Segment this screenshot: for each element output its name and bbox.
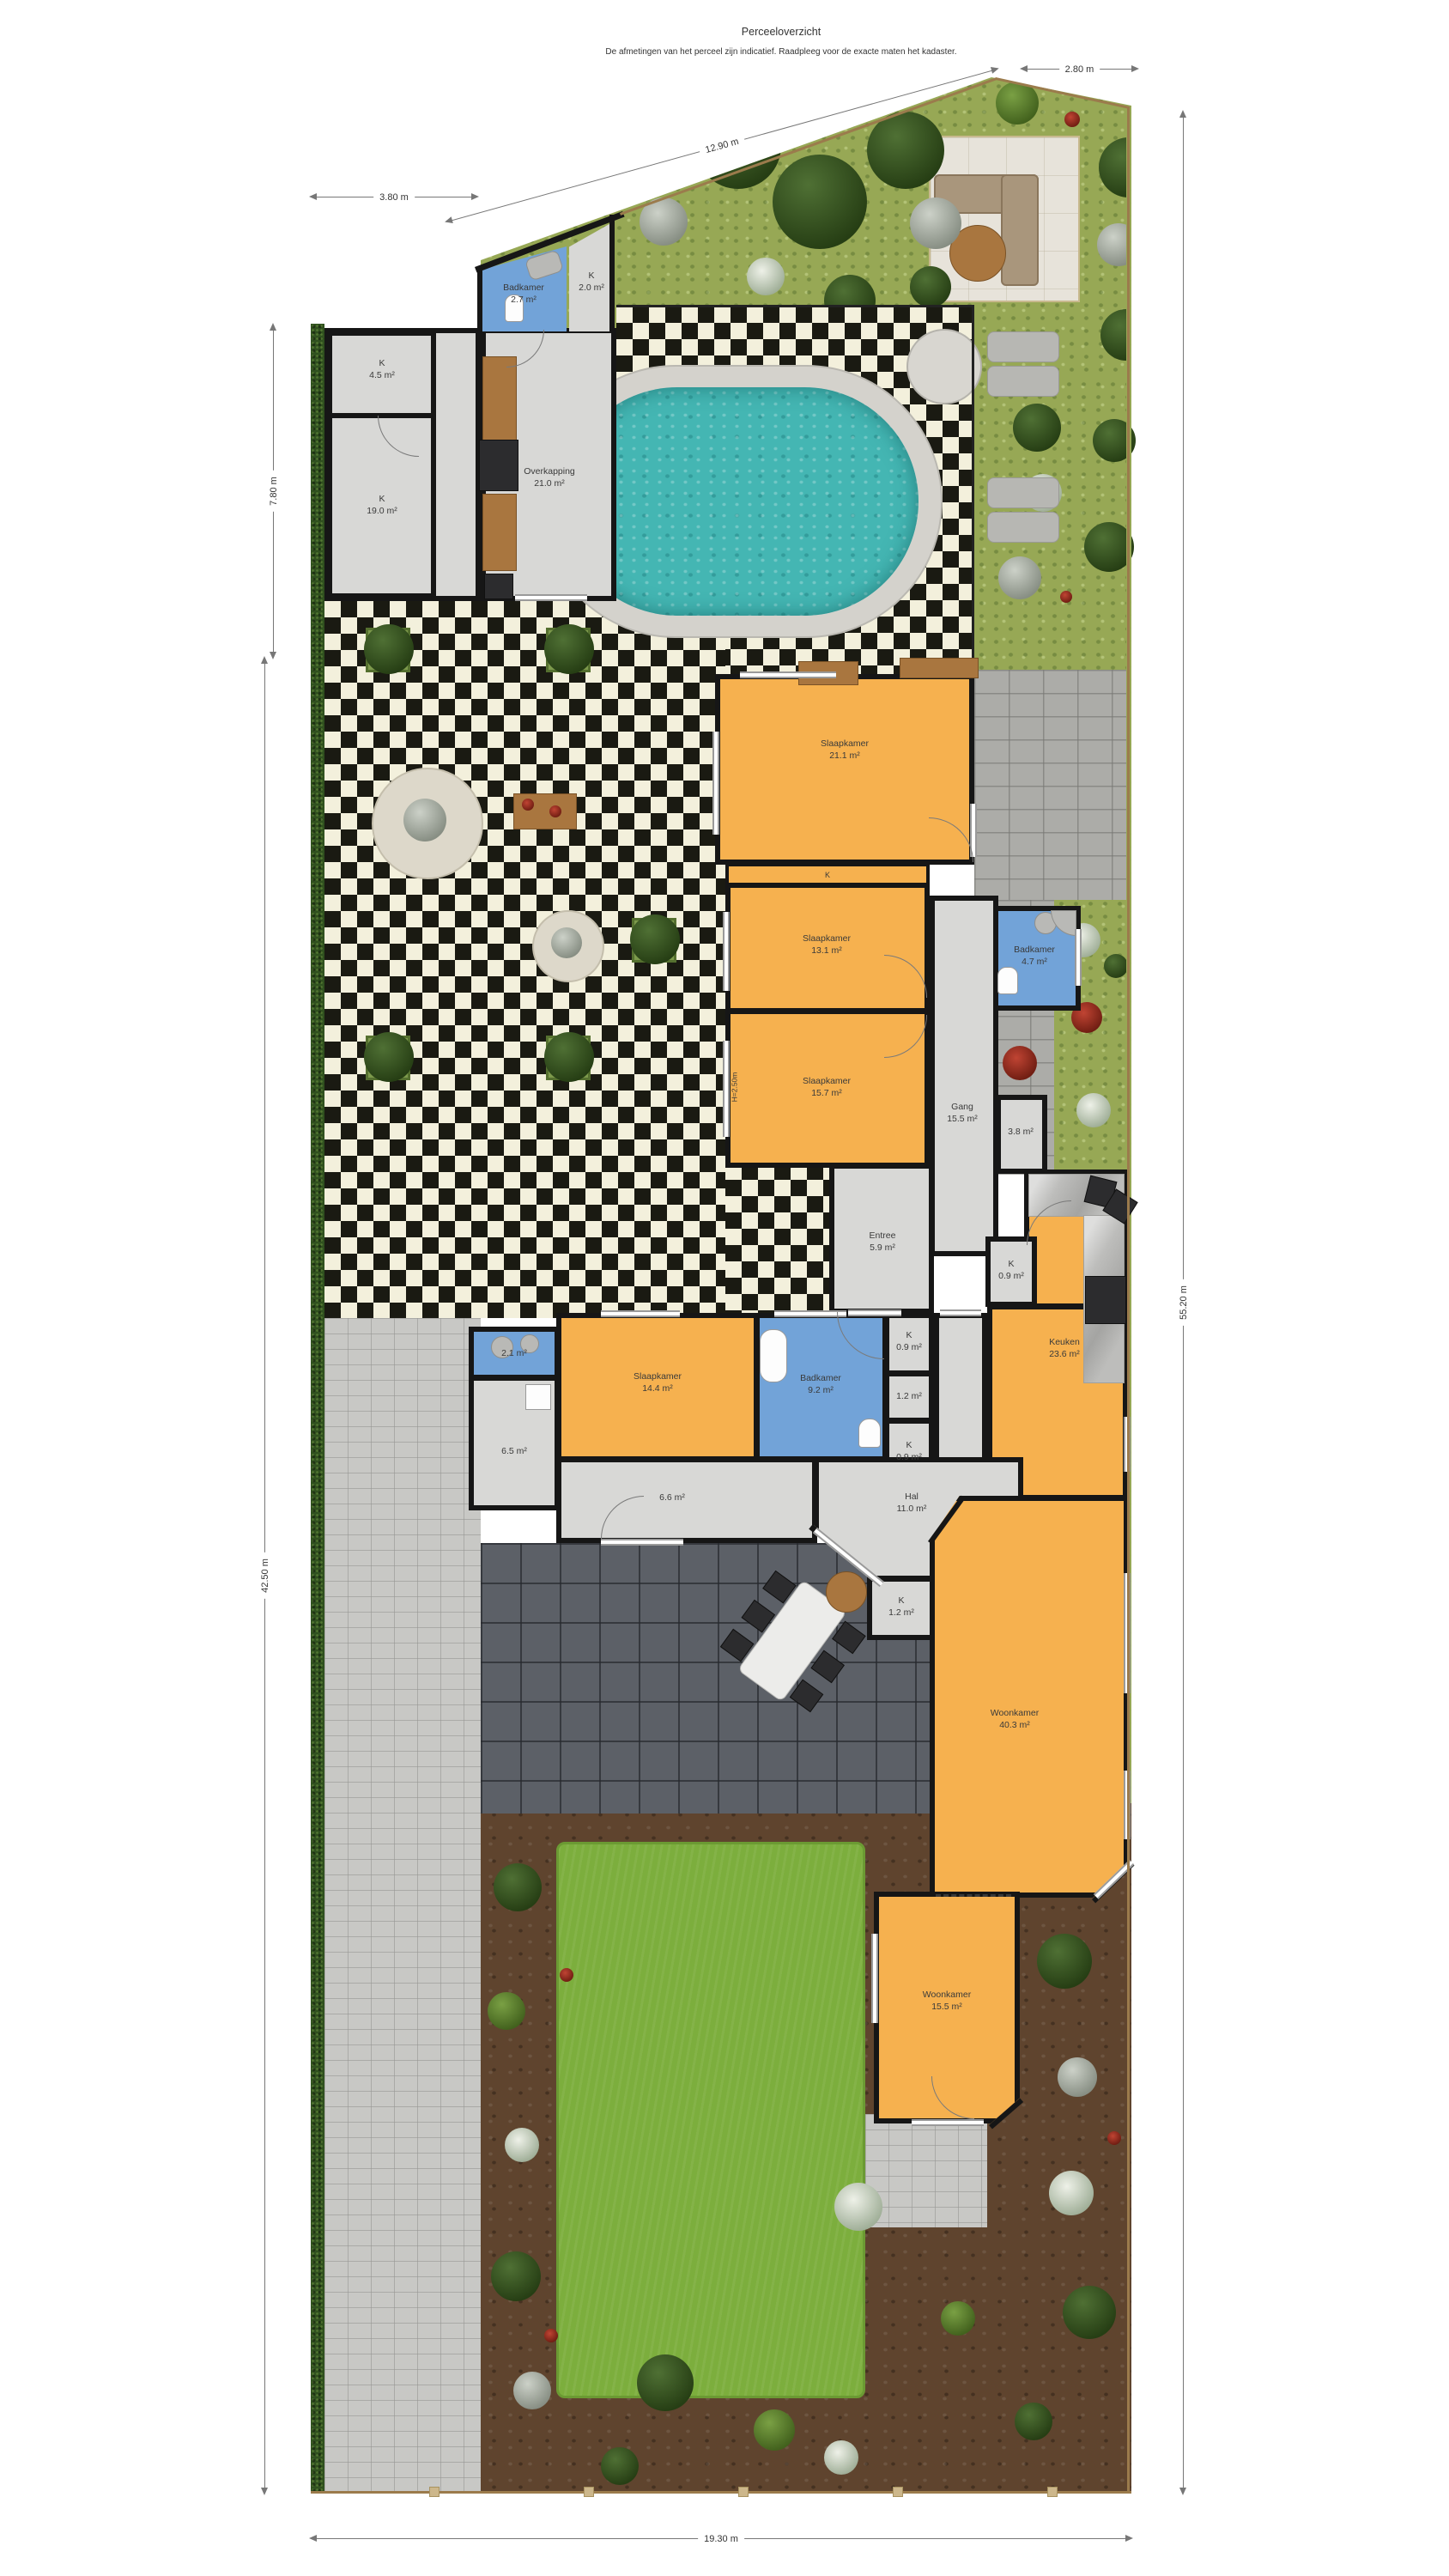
fence-line (1127, 106, 1130, 2494)
arrow-icon (1125, 2535, 1133, 2542)
room-label-badkamer2: Badkamer9.2 m² (800, 1372, 841, 1396)
lawn (556, 1842, 865, 2398)
wall (609, 215, 615, 331)
room-gang2 (556, 1457, 817, 1543)
plant (1049, 2171, 1094, 2215)
room-label-slaapkamer4: Slaapkamer14.4 m² (634, 1370, 682, 1394)
open-passage (936, 1894, 1011, 1897)
arrow-icon (471, 193, 479, 200)
room-label-badkamer-top: Badkamer2.7 m² (503, 282, 544, 306)
plant (1037, 1934, 1092, 1989)
room-label-badkamer1: Badkamer4.7 m² (1014, 944, 1055, 968)
site-plan: Perceeloverzicht De afmetingen van het p… (0, 0, 1449, 2576)
sun-lounger (987, 331, 1059, 362)
arrow-icon (270, 652, 276, 659)
plant (560, 1968, 573, 1982)
room-label-kast-top: K2.0 m² (579, 270, 604, 294)
room-label-gang2: 6.6 m² (659, 1492, 685, 1504)
plant (513, 2372, 551, 2409)
arrow-icon (1131, 65, 1139, 72)
plant (522, 799, 534, 811)
room-woonkamer1 (930, 1496, 1129, 1898)
door-opening (515, 594, 587, 601)
dimension-right: 55.20 m (1183, 112, 1184, 2494)
arrow-icon (261, 656, 268, 664)
room-label-overkapping: Overkapping21.0 m² (524, 465, 575, 489)
patio-south (865, 2114, 987, 2227)
room-label-entree: Entree5.9 m² (870, 1230, 896, 1254)
dimension-label: 55.20 m (1179, 1279, 1189, 1326)
corner-sofa (1001, 174, 1039, 286)
plant (824, 2440, 858, 2475)
wall (616, 305, 974, 307)
plant (544, 624, 594, 674)
room-label-kast-keuken: K0.9 m² (998, 1258, 1024, 1282)
wall (477, 267, 482, 331)
plant (549, 172, 601, 223)
plant (630, 914, 680, 964)
plant (1064, 112, 1080, 127)
plant (1104, 954, 1128, 978)
arrow-icon (309, 2535, 317, 2542)
plant (601, 2447, 639, 2485)
arrow-icon (1179, 2488, 1186, 2495)
room-label-woonkamer2: Woonkamer15.5 m² (923, 1989, 971, 2013)
dimension-left-upper: 7.80 m (273, 325, 274, 658)
plant (364, 624, 414, 674)
room-label-slaapkamer1: Slaapkamer21.1 m² (821, 738, 869, 762)
arrow-icon (444, 216, 453, 225)
arrow-icon (991, 65, 1000, 74)
ceiling-height-note: H=2.50m (730, 1072, 739, 1103)
room-label-kast-strip: K (825, 870, 830, 880)
sun-lounger (987, 366, 1059, 397)
bench (900, 658, 979, 678)
plant (1107, 2131, 1121, 2145)
stove (1085, 1276, 1126, 1324)
room-gang (930, 896, 998, 1256)
plant (1063, 2286, 1116, 2339)
plant (403, 799, 446, 841)
room-label-gang: Gang15.5 m² (947, 1101, 978, 1125)
room-label-hal: Hal11.0 m² (897, 1491, 927, 1515)
toilet (858, 1419, 881, 1448)
driveway (324, 1318, 481, 2494)
plant (910, 266, 951, 307)
dimension-label: 2.80 m (1059, 64, 1100, 75)
plant (773, 155, 867, 249)
arrow-icon (309, 193, 317, 200)
plant (998, 556, 1041, 599)
plant (1097, 223, 1140, 266)
garden-door (940, 1309, 981, 1316)
room-label-werkkast: 6.5 m² (501, 1445, 527, 1457)
fence-post (738, 2487, 749, 2497)
plant (1076, 1093, 1111, 1127)
dimension-left-lower: 42.50 m (264, 658, 265, 2494)
dimension-label: 42.50 m (260, 1552, 270, 1599)
toilet (997, 967, 1018, 994)
cabinet (482, 494, 517, 571)
dimension-label: 7.80 m (269, 471, 279, 512)
plant (1060, 591, 1072, 603)
room-label-slaapkamer3: Slaapkamer15.7 m² (803, 1075, 851, 1099)
sun-lounger (987, 477, 1059, 508)
plant (544, 2329, 558, 2342)
room-label-garage: K19.0 m² (367, 493, 397, 517)
arrow-icon (261, 2488, 268, 2495)
tiles-courtyard-south (725, 1163, 833, 1318)
room-label-kast-b: K0.9 m² (896, 1439, 922, 1463)
fence-post (429, 2487, 440, 2497)
plant (541, 137, 555, 151)
window (601, 1310, 680, 1317)
window (740, 671, 836, 678)
plant (1003, 1046, 1037, 1080)
room-label-kast-a: K0.9 m² (896, 1329, 922, 1353)
plan-header: Perceeloverzicht De afmetingen van het p… (129, 26, 1434, 57)
stepping-circle (906, 329, 982, 404)
plant (754, 2409, 795, 2451)
dimension-top-left: 3.80 m (311, 197, 477, 197)
plant (494, 1863, 542, 1911)
plant (549, 805, 561, 817)
dimension-top-right: 2.80 m (1022, 69, 1137, 70)
washer (525, 1384, 551, 1410)
dimension-bottom: 19.30 m (311, 2538, 1131, 2539)
plant (551, 927, 582, 958)
window (601, 1539, 683, 1546)
side-table (826, 1571, 867, 1613)
window (871, 1934, 878, 2023)
room-label-keuken: Keuken23.6 m² (1049, 1336, 1080, 1360)
garden-table (513, 793, 577, 829)
window (1075, 929, 1082, 986)
room-label-toilet: 2.1 m² (501, 1347, 527, 1359)
window (723, 1041, 730, 1137)
plant (834, 2183, 882, 2231)
plant (491, 2251, 541, 2301)
room-label-tussenkast: 1.2 m² (896, 1390, 922, 1402)
arrow-icon (270, 323, 276, 331)
terrace-stone (974, 670, 1126, 900)
room-label-slaapkamer2: Slaapkamer13.1 m² (803, 933, 851, 957)
room-label-berging: 3.8 m² (1008, 1126, 1034, 1138)
room-label-woonkamer1: Woonkamer40.3 m² (991, 1707, 1039, 1731)
plant (747, 258, 785, 295)
arrow-icon (1020, 65, 1028, 72)
sun-lounger (987, 512, 1059, 543)
plant (1013, 404, 1061, 452)
plant (1058, 2057, 1097, 2097)
window (912, 2119, 984, 2126)
hedge-strip (311, 324, 324, 2494)
wall (972, 307, 974, 678)
plant (544, 1032, 594, 1082)
page-title: Perceeloverzicht (129, 26, 1434, 38)
dimension-label: 3.80 m (373, 192, 415, 203)
page-subtitle: De afmetingen van het perceel zijn indic… (129, 47, 1434, 57)
plant (941, 2301, 975, 2336)
room-label-berging-klein: K4.5 m² (369, 357, 395, 381)
plant (637, 2354, 694, 2411)
window (712, 732, 719, 835)
window (723, 912, 730, 991)
plant (364, 1032, 414, 1082)
bathtub (760, 1329, 787, 1382)
bbq-grill (479, 440, 518, 491)
plant (867, 112, 944, 189)
storage-box (484, 574, 513, 599)
fence-post (584, 2487, 594, 2497)
arrow-icon (1179, 110, 1186, 118)
plant (1015, 2403, 1052, 2440)
plant (488, 1992, 525, 2030)
fence-post (1047, 2487, 1058, 2497)
plant (910, 197, 961, 249)
cabinet (482, 356, 517, 447)
fence-post (893, 2487, 903, 2497)
plant (505, 2128, 539, 2162)
swimming-pool (563, 387, 919, 616)
window (774, 1310, 846, 1317)
dimension-label: 12.90 m (699, 135, 746, 157)
room-label-kast-hal: K1.2 m² (888, 1595, 914, 1619)
dimension-label: 19.30 m (698, 2534, 744, 2544)
